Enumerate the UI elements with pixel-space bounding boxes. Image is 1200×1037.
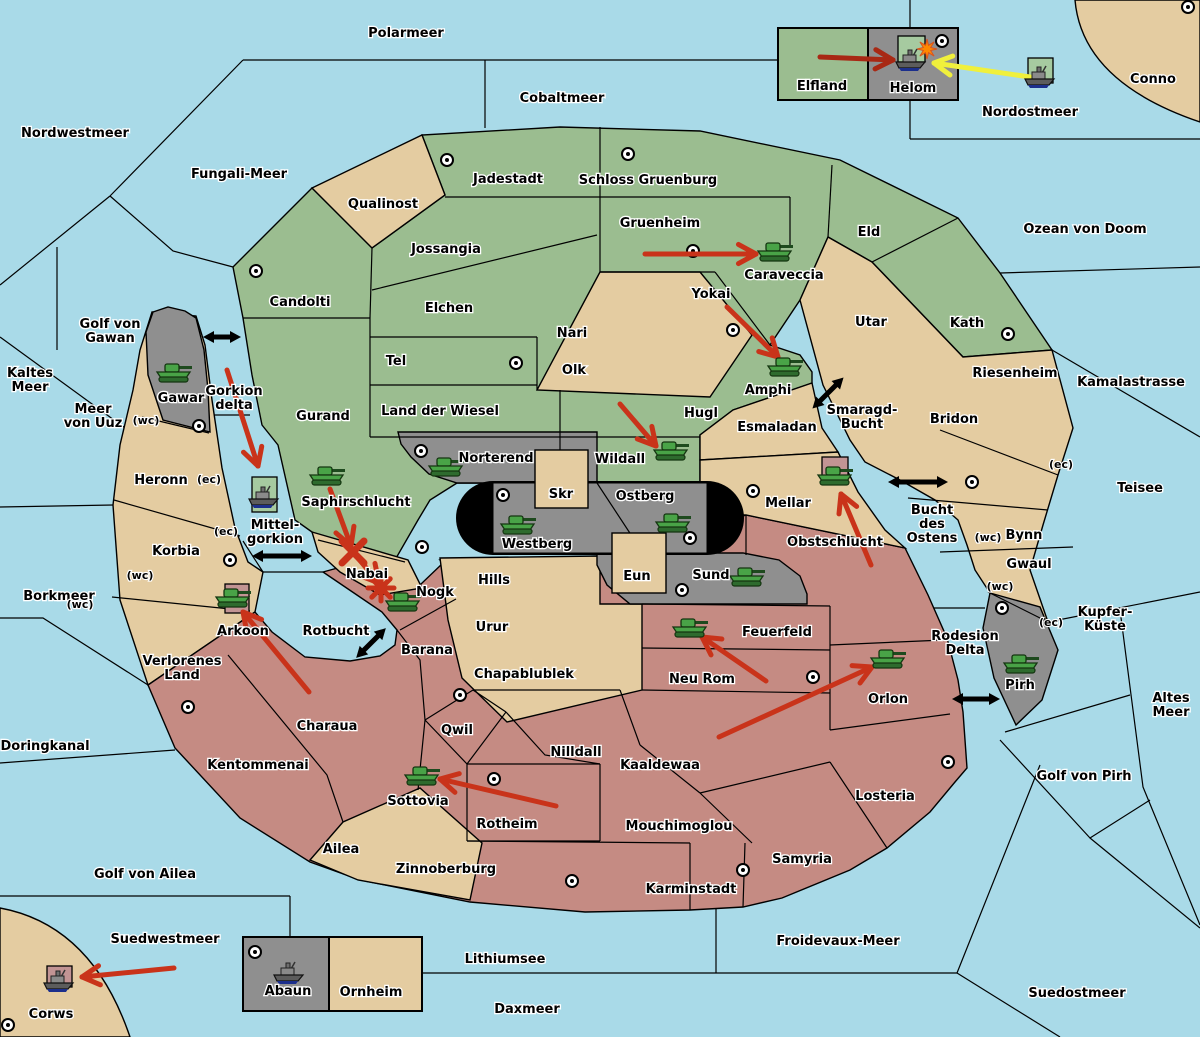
- city-marker-icon: [250, 265, 262, 277]
- territory-label-kath[interactable]: Kath: [950, 316, 984, 331]
- sea-zone-label-ozean-von-doom[interactable]: Ozean von Doom: [1023, 222, 1146, 237]
- sea-zone-label-golf-von-ailea[interactable]: Golf von Ailea: [94, 867, 196, 882]
- crossing-tag: (wc): [975, 531, 1002, 544]
- territory-label-gawar[interactable]: Gawar: [158, 391, 205, 406]
- sea-zone-label-kamalastrasse[interactable]: Kamalastrasse: [1077, 375, 1185, 390]
- territory-label-barana[interactable]: Barana: [401, 643, 453, 658]
- city-marker-icon: [727, 324, 739, 336]
- city-marker-icon: [966, 476, 978, 488]
- crossing-tag: (ec): [1049, 458, 1073, 471]
- territory-label-qwil[interactable]: Qwil: [441, 723, 473, 738]
- sea-zone-label-fungali-meer[interactable]: Fungali-Meer: [191, 167, 288, 182]
- territory-label-ailea[interactable]: Ailea: [323, 842, 360, 857]
- sea-zone-label-lithiumsee[interactable]: Lithiumsee: [465, 952, 546, 967]
- territory-label-nabai[interactable]: Nabai: [346, 567, 388, 582]
- territory-label-hugl[interactable]: Hugl: [684, 406, 718, 421]
- city-marker-icon: [566, 875, 578, 887]
- territory-label-gurand[interactable]: Gurand: [296, 409, 350, 424]
- city-marker-icon: [936, 35, 948, 47]
- city-marker-icon: [684, 532, 696, 544]
- territory-label-schloss-gruenburg[interactable]: Schloss Gruenburg: [579, 173, 717, 188]
- city-marker-icon: [416, 541, 428, 553]
- territory-label-ornheim[interactable]: Ornheim: [340, 985, 403, 1000]
- territory-label-candolti[interactable]: Candolti: [270, 295, 331, 310]
- city-marker-icon: [415, 445, 427, 457]
- territory-label-riesenheim[interactable]: Riesenheim: [972, 366, 1057, 381]
- territory-label-yokai[interactable]: Yokai: [690, 287, 730, 302]
- city-marker-icon: [622, 148, 634, 160]
- territory-label-westberg[interactable]: Westberg: [502, 537, 572, 552]
- territory-label-wildall[interactable]: Wildall: [595, 452, 645, 467]
- crossing-tag: (wc): [987, 580, 1014, 593]
- territory-label-conno[interactable]: Conno: [1130, 72, 1176, 87]
- city-marker-icon: [497, 489, 509, 501]
- war-map-stage: PolarmeerNordwestmeerFungali-MeerCobaltm…: [0, 0, 1200, 1037]
- territory-label-amphi[interactable]: Amphi: [745, 383, 792, 398]
- region-eun[interactable]: [612, 533, 666, 593]
- sea-zone-label-kaltes-meer[interactable]: KaltesMeer: [7, 366, 53, 395]
- city-marker-icon: [510, 357, 522, 369]
- territory-label-land-der-wiesel[interactable]: Land der Wiesel: [381, 404, 499, 419]
- territory-label-corws[interactable]: Corws: [29, 1007, 74, 1022]
- territory-label-saphirschlucht[interactable]: Saphirschlucht: [301, 495, 410, 510]
- territory-label-utar[interactable]: Utar: [855, 315, 888, 330]
- territory-label-gwaul[interactable]: Gwaul: [1006, 557, 1051, 572]
- city-marker-icon: [224, 554, 236, 566]
- territory-label-bynn[interactable]: Bynn: [1006, 528, 1043, 543]
- territory-label-charaua[interactable]: Charaua: [297, 719, 358, 734]
- city-marker-icon: [249, 946, 261, 958]
- territory-label-sottovia[interactable]: Sottovia: [387, 794, 448, 809]
- territory-label-chapablublek[interactable]: Chapablublek: [474, 667, 574, 682]
- territory-label-olk[interactable]: Olk: [562, 363, 587, 378]
- territory-label-zinnoberburg[interactable]: Zinnoberburg: [396, 862, 496, 877]
- territory-label-nari[interactable]: Nari: [557, 326, 588, 341]
- territory-label-obstschlucht[interactable]: Obstschlucht: [787, 535, 883, 550]
- territory-label-karminstadt[interactable]: Karminstadt: [646, 882, 737, 897]
- city-marker-icon: [676, 584, 688, 596]
- territory-label-neu-rom[interactable]: Neu Rom: [669, 672, 735, 687]
- territory-label-arkoon[interactable]: Arkoon: [217, 624, 269, 639]
- crossing-tag: (ec): [1039, 616, 1063, 629]
- territory-label-kentommenai[interactable]: Kentommenai: [207, 758, 308, 773]
- sea-zone-label-suedostmeer[interactable]: Suedostmeer: [1028, 986, 1126, 1001]
- city-marker-icon: [1002, 328, 1014, 340]
- territory-label-tel[interactable]: Tel: [386, 354, 406, 369]
- territory-label-gruenheim[interactable]: Gruenheim: [620, 216, 700, 231]
- territory-label-heronn[interactable]: Heronn: [134, 473, 188, 488]
- sea-zone-label-polarmeer[interactable]: Polarmeer: [368, 26, 444, 41]
- territory-label-caraveccia[interactable]: Caraveccia: [744, 268, 823, 283]
- sea-zone-label-suedwestmeer[interactable]: Suedwestmeer: [110, 932, 220, 947]
- territory-label-bridon[interactable]: Bridon: [930, 412, 978, 427]
- sea-zone-label-golf-von-pirh[interactable]: Golf von Pirh: [1036, 769, 1131, 784]
- city-marker-icon: [996, 602, 1008, 614]
- territory-label-jadestadt[interactable]: Jadestadt: [472, 172, 543, 187]
- sea-zone-label-teisee[interactable]: Teisee: [1117, 481, 1163, 496]
- sea-zone-label-froidevaux-meer[interactable]: Froidevaux-Meer: [776, 934, 900, 949]
- territory-label-nogk[interactable]: Nogk: [416, 585, 454, 600]
- sea-zone-label-mittel-gorkion[interactable]: Mittel-gorkion: [247, 518, 303, 547]
- territory-label-esmaladan[interactable]: Esmaladan: [737, 420, 817, 435]
- sea-zone-label-nordostmeer[interactable]: Nordostmeer: [982, 105, 1079, 120]
- crossing-tag: (wc): [67, 598, 94, 611]
- sea-zone-label-kupfer-k-ste[interactable]: Kupfer-Küste: [1078, 605, 1133, 634]
- territory-label-kaaldewaa[interactable]: Kaaldewaa: [620, 758, 700, 773]
- territory-label-skr[interactable]: Skr: [549, 487, 574, 502]
- crossing-tag: (wc): [127, 569, 154, 582]
- territory-label-rotheim[interactable]: Rotheim: [476, 817, 537, 832]
- game-map[interactable]: PolarmeerNordwestmeerFungali-MeerCobaltm…: [0, 0, 1200, 1037]
- crossing-tag: (ec): [214, 525, 238, 538]
- territory-label-hills[interactable]: Hills: [478, 573, 510, 588]
- territory-label-qualinost[interactable]: Qualinost: [348, 197, 418, 212]
- sea-zone-label-daxmeer[interactable]: Daxmeer: [494, 1002, 560, 1017]
- territory-label-mellar[interactable]: Mellar: [765, 496, 811, 511]
- sea-zone-label-rotbucht[interactable]: Rotbucht: [303, 624, 370, 639]
- territory-label-norterend[interactable]: Norterend: [458, 451, 533, 466]
- crossing-tag: (ec): [197, 473, 221, 486]
- territory-label-ostberg[interactable]: Ostberg: [616, 489, 675, 504]
- territory-label-pirh[interactable]: Pirh: [1005, 678, 1035, 693]
- territory-label-eun[interactable]: Eun: [623, 569, 650, 584]
- city-marker-icon: [942, 756, 954, 768]
- territory-label-mouchimoglou[interactable]: Mouchimoglou: [626, 819, 733, 834]
- sea-zone-label-altes-meer[interactable]: AltesMeer: [1152, 691, 1190, 720]
- territory-label-abaun[interactable]: Abaun: [265, 984, 312, 999]
- city-marker-icon: [1182, 1, 1194, 13]
- territory-label-sund[interactable]: Sund: [692, 568, 729, 583]
- territory-label-helom[interactable]: Helom: [890, 81, 937, 96]
- territory-label-elfland[interactable]: Elfland: [797, 79, 847, 94]
- territory-label-feuerfeld[interactable]: Feuerfeld: [742, 625, 812, 640]
- city-marker-icon: [488, 773, 500, 785]
- territory-label-korbia[interactable]: Korbia: [152, 544, 200, 559]
- territory-label-orlon[interactable]: Orlon: [868, 692, 908, 707]
- territory-label-elchen[interactable]: Elchen: [425, 301, 473, 316]
- sea-zone-label-nordwestmeer[interactable]: Nordwestmeer: [21, 126, 129, 141]
- territory-label-nilldall[interactable]: Nilldall: [550, 745, 601, 760]
- territory-label-samyria[interactable]: Samyria: [772, 852, 832, 867]
- territory-label-jossangia[interactable]: Jossangia: [410, 242, 481, 257]
- city-marker-icon: [747, 485, 759, 497]
- city-marker-icon: [441, 154, 453, 166]
- explosion-battle-icon: [917, 39, 937, 59]
- city-marker-icon: [807, 671, 819, 683]
- city-marker-icon: [737, 864, 749, 876]
- territory-label-eld[interactable]: Eld: [858, 225, 881, 240]
- sea-zone-label-cobaltmeer[interactable]: Cobaltmeer: [520, 91, 605, 106]
- sea-zone-label-doringkanal[interactable]: Doringkanal: [0, 739, 89, 754]
- city-marker-icon: [2, 1019, 14, 1031]
- territory-label-losteria[interactable]: Losteria: [855, 789, 915, 804]
- city-marker-icon: [182, 701, 194, 713]
- crossing-tag: (wc): [133, 414, 160, 427]
- city-marker-icon: [193, 420, 205, 432]
- city-marker-icon: [454, 689, 466, 701]
- territory-label-urur[interactable]: Urur: [476, 620, 509, 635]
- sea-zone-label-golf-von-gawan[interactable]: Golf vonGawan: [80, 317, 141, 346]
